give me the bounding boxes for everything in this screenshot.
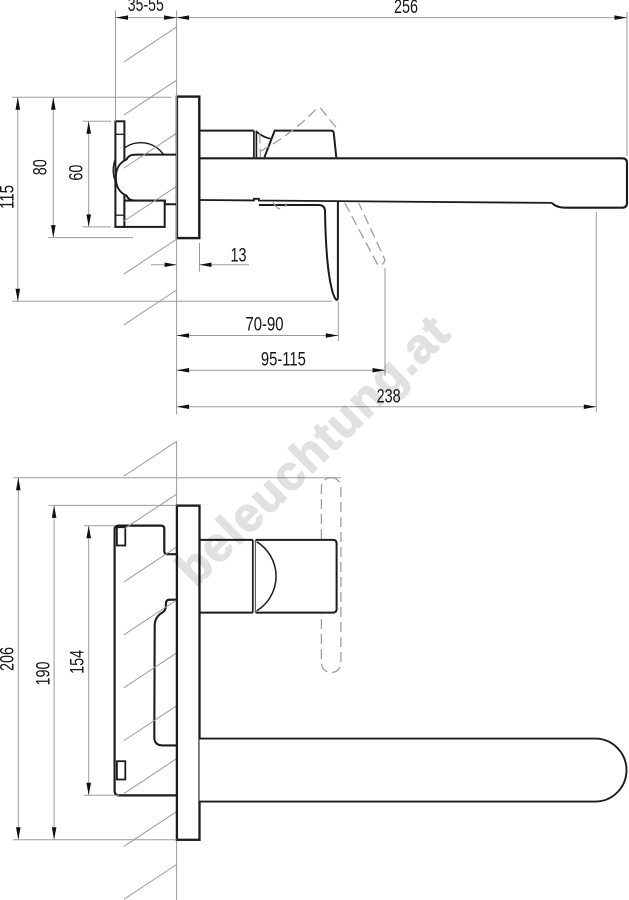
svg-text:70-90: 70-90: [246, 314, 284, 336]
svg-text:35-55: 35-55: [128, 0, 164, 16]
svg-text:60: 60: [66, 164, 88, 180]
svg-text:115: 115: [0, 185, 19, 209]
svg-text:80: 80: [30, 159, 52, 175]
svg-text:206: 206: [0, 647, 19, 671]
svg-text:256: 256: [394, 0, 418, 18]
svg-text:13: 13: [231, 245, 247, 267]
svg-text:154: 154: [67, 650, 89, 674]
svg-text:95-115: 95-115: [261, 348, 306, 370]
svg-text:190: 190: [32, 661, 54, 685]
